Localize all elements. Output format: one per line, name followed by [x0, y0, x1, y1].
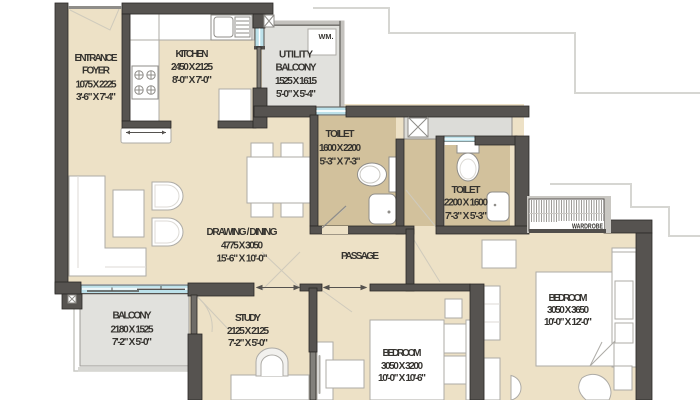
svg-text:TOILET: TOILET [326, 129, 355, 140]
svg-text:ENTRANCE: ENTRANCE [75, 53, 118, 64]
svg-text:KITCHEN: KITCHEN [176, 49, 209, 60]
svg-text:7'-2" X 5'-0": 7'-2" X 5'-0" [228, 338, 268, 349]
svg-text:TOILET: TOILET [452, 185, 481, 196]
svg-text:UTILITY: UTILITY [279, 50, 313, 61]
svg-text:WARDROBE: WARDROBE [572, 224, 603, 231]
svg-text:3050 X 3200: 3050 X 3200 [381, 361, 423, 372]
svg-text:BALCONY: BALCONY [276, 63, 317, 74]
svg-text:2450 X 2125: 2450 X 2125 [171, 62, 213, 73]
svg-text:15'-6" X 10'-0": 15'-6" X 10'-0" [217, 254, 268, 265]
svg-text:5'-0" X 5'-4": 5'-0" X 5'-4" [276, 89, 316, 100]
svg-text:PASSAGE: PASSAGE [341, 251, 379, 262]
svg-text:DRAWING / DINING: DRAWING / DINING [207, 227, 278, 238]
svg-text:2180 X 1525: 2180 X 1525 [111, 325, 154, 336]
svg-text:10'-0" X 10'-6": 10'-0" X 10'-6" [378, 373, 426, 384]
svg-text:2200 X 1600: 2200 X 1600 [444, 198, 488, 209]
svg-text:5'-3" X 7'-3": 5'-3" X 7'-3" [320, 157, 361, 168]
svg-text:1075 X 2225: 1075 X 2225 [76, 80, 117, 91]
svg-text:8'-0" X 7'-0": 8'-0" X 7'-0" [172, 75, 212, 86]
svg-text:7'-2" X 5'-0": 7'-2" X 5'-0" [112, 337, 152, 348]
svg-text:BALCONY: BALCONY [113, 311, 152, 322]
svg-text:FOYER: FOYER [82, 66, 111, 77]
svg-text:WM.: WM. [319, 34, 334, 41]
svg-text:BEDROOM: BEDROOM [549, 293, 588, 304]
svg-text:1525 X 1615: 1525 X 1615 [275, 76, 317, 87]
svg-text:1600 X 2200: 1600 X 2200 [319, 143, 361, 154]
svg-text:3050 X 3650: 3050 X 3650 [547, 305, 589, 316]
svg-text:7'-3" X 5'-3": 7'-3" X 5'-3" [445, 211, 487, 222]
svg-text:BEDROOM: BEDROOM [383, 348, 422, 359]
svg-text:3'-6" X 7'-4": 3'-6" X 7'-4" [76, 92, 116, 103]
svg-text:STUDY: STUDY [235, 313, 261, 324]
svg-text:4775 X 3050: 4775 X 3050 [221, 241, 263, 252]
svg-text:2125 X 2125: 2125 X 2125 [227, 326, 269, 337]
svg-text:10'-0" X 12'-0": 10'-0" X 12'-0" [544, 317, 592, 328]
